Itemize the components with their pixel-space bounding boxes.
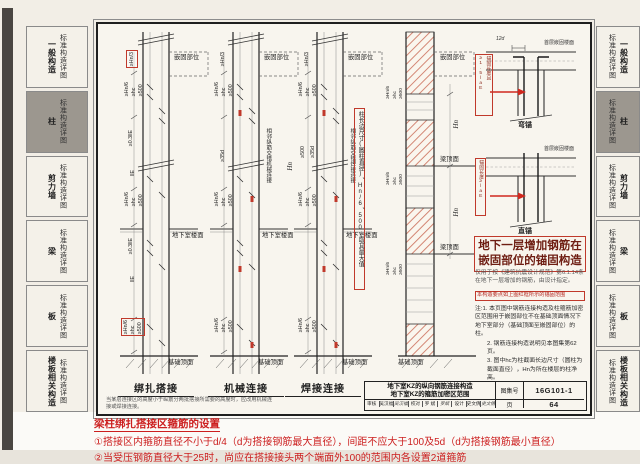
dim-03lle: ≥0.3llE (128, 238, 134, 254)
annotation-item-2: ②当受压钢筋直径大于25时，尚应在搭接接头两个端面外100的范围内各设置2道箍筋 (94, 449, 640, 464)
right-tab-index: 标准构造详图 一般构造 标准构造详图 柱 标准构造详图 剪力墙 标准构造详图 梁… (596, 26, 640, 412)
dim-hn6: ≥Hn/6 (124, 192, 130, 206)
dim-stack: ≥Hn/6 ≥hc ≥500 (386, 86, 405, 99)
tab-slab-related: 楼板相关构造 标准构造详图 (26, 350, 88, 412)
dim-hn6: ≥Hn/6 (124, 82, 130, 96)
tab-detail-label: 标准构造详图 (609, 229, 616, 274)
tab-detail-label: 标准构造详图 (60, 164, 67, 209)
detail-title-line1: 地下一层增加钢筋在 (476, 239, 584, 254)
foundation-top-label: 基础顶面 (398, 360, 423, 366)
first-floor-embed-label: 首层嵌固楼面 (544, 147, 574, 152)
sheet-title-line1: 地下室KZ的纵向钢筋连接构造 (387, 383, 472, 391)
dim-hc: ≥hc (131, 82, 137, 96)
tab-detail-label: 标准构造详图 (609, 294, 616, 339)
tab-column: 标准构造详图 柱 (596, 91, 640, 153)
dim-500: ≥500 (228, 318, 234, 332)
dim-hn3: ≥Hn/3 (304, 52, 310, 66)
tab-column: 柱 标准构造详图 (26, 91, 88, 153)
straight-anchor-caption: 直锚 (518, 228, 532, 235)
bend-anchor-note: 锚固长度且≥1.5laE (475, 54, 493, 116)
storey-height-hn: Hn (452, 208, 460, 217)
tab-beam: 梁 标准构造详图 (26, 220, 88, 282)
dim-500: ≥500 (399, 262, 405, 275)
sig-name: 罗 斌 (422, 401, 437, 407)
lap-splice-footnote: 当某层连接区的高度小于纵筋分两批搭接所需要的高度时，应改用机械连接或焊接连接。 (106, 397, 274, 411)
storey-height-hn: Hn (452, 120, 460, 129)
atlas-no-value: 16G101-1 (523, 382, 584, 399)
foundation-top-label: 基础顶面 (168, 360, 193, 366)
dim-hn6: ≥Hn/6 (214, 318, 220, 332)
detail-usage-note: 仅用于按《建筑抗震设计规范》第6.1.14条在地下一层增加的钢筋，由设计指定。 (475, 270, 585, 286)
signature-row: 审核 吴汉福 吴汉福 校对 罗 斌 罗斌 设计 史文倩 史文倩 (365, 399, 495, 408)
caption-lap-splice: 绑扎搭接 (118, 380, 194, 397)
highlight-note: 本构造要点如上图红框所示的锚固范围 (475, 291, 585, 301)
tab-category: 板 (48, 312, 56, 321)
dim-hn6: ≥Hn/6 (298, 318, 304, 332)
tab-category: 梁 (620, 247, 628, 256)
dim-hn6: ≥Hn/6 (214, 192, 220, 206)
dim-hn6: ≥Hn/6 (298, 82, 304, 96)
note-3: 3. 图中hc为柱截面长边尺寸（圆柱为截面直径），Hn为所在楼层的柱净高。 (475, 357, 585, 382)
dim-500: ≥500 (138, 82, 144, 96)
dim-35d: ≥35d (220, 150, 226, 162)
beam-top-label: 梁顶面 (440, 157, 459, 163)
densification-max-rule: 柱长边尺寸(圆柱直径)、Hn/6、500,取其最大值 (354, 108, 365, 290)
dim-500: ≥500 (399, 86, 405, 99)
dim-hn6: ≥Hn/6 (123, 320, 129, 334)
dim-hn3: ≥Hn/3 (129, 52, 135, 66)
embed-part-label: 嵌固部位 (174, 55, 199, 61)
scanned-atlas-page: 一般构造 标准构造详图 柱 标准构造详图 剪力墙 标准构造详图 梁 标准构造详图… (0, 0, 640, 450)
straight-anchor-detail (486, 153, 576, 227)
dim-hc: ≥hc (393, 172, 399, 185)
dim-stack: ≥Hn/6 ≥hc ≥500 (124, 82, 144, 96)
tab-general: 标准构造详图 一般构造 (596, 26, 640, 88)
annotation-item-1: ①搭接区内箍筋直径不小于d/4（d为搭接钢筋最大直径），间距不应大于100及5d… (94, 433, 640, 448)
dim-stack: ≥Hn/6 ≥hc ≥500 (124, 192, 144, 206)
sig-label: 设计 (451, 401, 466, 407)
tab-detail-label: 标准构造详图 (60, 34, 67, 79)
dim-stack: ≥Hn/6 ≥hc ≥500 (214, 192, 234, 206)
tab-shearwall: 标准构造详图 剪力墙 (596, 156, 640, 218)
dim-lle: llE (130, 170, 136, 176)
dim-500: ≥500 (138, 192, 144, 206)
tab-category: 梁 (48, 247, 56, 256)
dim-hc: ≥hc (393, 262, 399, 275)
tab-category: 一般构造 (620, 40, 628, 74)
tab-slab: 标准构造详图 板 (596, 285, 640, 347)
dim-stack: ≥Hn/6 ≥hc ≥500 (214, 82, 234, 96)
dim-500: ≥500 (312, 192, 318, 206)
dim-hc: ≥hc (221, 318, 227, 332)
detail-title: 地下一层增加钢筋在 嵌固部位的锚固构造 (474, 236, 586, 272)
note-1: 注:1. 本页图中钢筋连接构造及柱箍筋加密区范围用于嵌固部位不在基础顶面情况下地… (475, 305, 585, 339)
tab-category: 楼板相关构造 (620, 356, 628, 407)
tab-detail-label: 标准构造详图 (609, 99, 616, 144)
tab-detail-label: 标准构造详图 (60, 359, 67, 404)
dim-stack: ≥Hn/6 ≥hc ≥500 (298, 318, 318, 332)
tab-shearwall: 剪力墙 标准构造详图 (26, 156, 88, 218)
dim-500: ≥500 (228, 82, 234, 96)
title-block: 地下室KZ的纵向钢筋连接构造 地下室KZ的箍筋加密区范围 图集号 16G101-… (364, 381, 587, 411)
dim-35d: ≥35d (310, 146, 316, 158)
basement-floor-label: 地下室楼面 (172, 233, 203, 239)
basement-floor-label: 地下室楼面 (262, 233, 293, 239)
straight-anchor-note: 锚固长度≥laE (475, 158, 486, 216)
page-number: 64 (523, 399, 584, 408)
dim-hn6: ≥Hn/6 (386, 262, 392, 275)
tab-detail-label: 标准构造详图 (609, 164, 616, 209)
embed-part-label: 嵌固部位 (264, 55, 289, 61)
sig-name: 史文倩 (466, 401, 481, 407)
foundation-top-label: 基础顶面 (258, 360, 283, 366)
tab-beam: 标准构造详图 梁 (596, 220, 640, 282)
tab-category: 剪力墙 (48, 174, 56, 200)
dim-hc: ≥hc (393, 86, 399, 99)
dim-hc: ≥hc (305, 82, 311, 96)
tab-category: 楼板相关构造 (48, 356, 56, 407)
bottom-annotation: 梁柱绑扎搭接区箍筋的设置 ①搭接区内箍筋直径不小于d/4（d为搭接钢筋最大直径）… (94, 414, 640, 464)
dim-hc: ≥hc (130, 320, 136, 334)
dim-hn6: ≥Hn/6 (386, 172, 392, 185)
left-edge-strip (2, 8, 13, 450)
tab-detail-label: 标准构造详图 (60, 229, 67, 274)
dim-stack: ≥Hn/6 ≥hc ≥500 (386, 262, 405, 275)
foundation-top-label: 基础顶面 (342, 360, 367, 366)
tab-category: 剪力墙 (620, 174, 628, 200)
tab-slab-related: 标准构造详图 楼板相关构造 (596, 350, 640, 412)
dim-stack: ≥Hn/6 ≥hc ≥500 (298, 82, 318, 96)
dim-hn6: ≥Hn/6 (298, 192, 304, 206)
dim-500: ≥500 (399, 172, 405, 185)
first-floor-embed-label: 首层嵌固楼面 (544, 41, 574, 46)
sheet-title: 地下室KZ的纵向钢筋连接构造 地下室KZ的箍筋加密区范围 (365, 382, 495, 399)
tab-detail-label: 标准构造详图 (60, 294, 67, 339)
detail-title-line2: 嵌固部位的锚固构造 (476, 254, 584, 269)
dim-stack-highlight: ≥Hn/6 ≥hc ≥500 (121, 318, 145, 336)
beam-top-label: 梁顶面 (440, 245, 459, 251)
drawing-frame: ≥Hn/3 嵌固部位 ≥Hn/6 ≥hc ≥500 ≥0.3llE llE ≥H… (96, 22, 592, 416)
dim-hn3-highlight: ≥Hn/3 (126, 50, 138, 68)
embed-part-label: 嵌固部位 (348, 55, 373, 61)
embed-part-label: 嵌固部位 (440, 55, 465, 61)
left-tab-index: 一般构造 标准构造详图 柱 标准构造详图 剪力墙 标准构造详图 梁 标准构造详图… (26, 26, 88, 412)
dim-hn6: ≥Hn/6 (386, 86, 392, 99)
dim-hc: ≥hc (221, 82, 227, 96)
tab-category: 柱 (620, 117, 628, 126)
dim-lle: llE (130, 276, 136, 282)
tab-detail-label: 标准构造详图 (60, 99, 67, 144)
dim-500: ≥500 (300, 146, 306, 158)
dim-500: ≥500 (137, 320, 143, 334)
bend-anchor-detail (486, 45, 576, 121)
tab-category: 一般构造 (48, 40, 56, 74)
dim-hn3: ≥Hn/3 (220, 52, 226, 66)
dim-500: ≥500 (312, 82, 318, 96)
tab-category: 板 (620, 312, 628, 321)
note-2: 2. 钢筋连接构造说明见本图集第62页。 (475, 340, 585, 357)
atlas-no-label: 图集号 (495, 382, 523, 399)
dim-500: ≥500 (228, 192, 234, 206)
dim-hc: ≥hc (305, 192, 311, 206)
sig-label: 校对 (408, 401, 423, 407)
tab-general: 一般构造 标准构造详图 (26, 26, 88, 88)
dim-500: ≥500 (312, 318, 318, 332)
stirrup-densification-column (398, 32, 476, 368)
sig-signature: 史文倩 (480, 401, 495, 407)
storey-height-hn: Hn (286, 162, 294, 171)
page-label: 页 (495, 399, 523, 408)
drawing-notes: 注:1. 本页图中钢筋连接构造及柱箍筋加密区范围用于嵌固部位不在基础顶面情况下地… (475, 305, 585, 383)
sig-name: 吴汉福 (379, 401, 394, 407)
dim-stack: ≥Hn/6 ≥hc ≥500 (298, 192, 318, 206)
dim-hn6: ≥Hn/6 (214, 82, 220, 96)
dim-stack: ≥Hn/6 ≥hc ≥500 (214, 318, 234, 332)
sheet-title-line2: 地下室KZ的箍筋加密区范围 (391, 391, 470, 399)
caption-mechanical: 机械连接 (208, 380, 284, 397)
tab-slab: 板 标准构造详图 (26, 285, 88, 347)
dim-03lle: ≥0.3llE (128, 130, 134, 146)
dim-hc: ≥hc (131, 192, 137, 206)
tab-detail-label: 标准构造详图 (609, 34, 616, 79)
sig-label: 审核 (365, 401, 379, 407)
tab-category: 柱 (48, 117, 56, 126)
sig-signature: 吴汉福 (393, 401, 408, 407)
dim-hc: ≥hc (221, 192, 227, 206)
dim-12d: 12d (496, 37, 504, 42)
sig-signature: 罗斌 (437, 401, 452, 407)
bend-anchor-caption: 弯锚 (518, 122, 532, 129)
caption-welded: 焊接连接 (285, 380, 361, 397)
annotation-heading: 梁柱绑扎搭接区箍筋的设置 (94, 416, 220, 432)
mechanical-splice-note: 相邻纵筋交错机械连接 (264, 128, 272, 208)
tab-detail-label: 标准构造详图 (609, 359, 616, 404)
dim-stack: ≥Hn/6 ≥hc ≥500 (386, 172, 405, 185)
dim-hc: ≥hc (305, 318, 311, 332)
